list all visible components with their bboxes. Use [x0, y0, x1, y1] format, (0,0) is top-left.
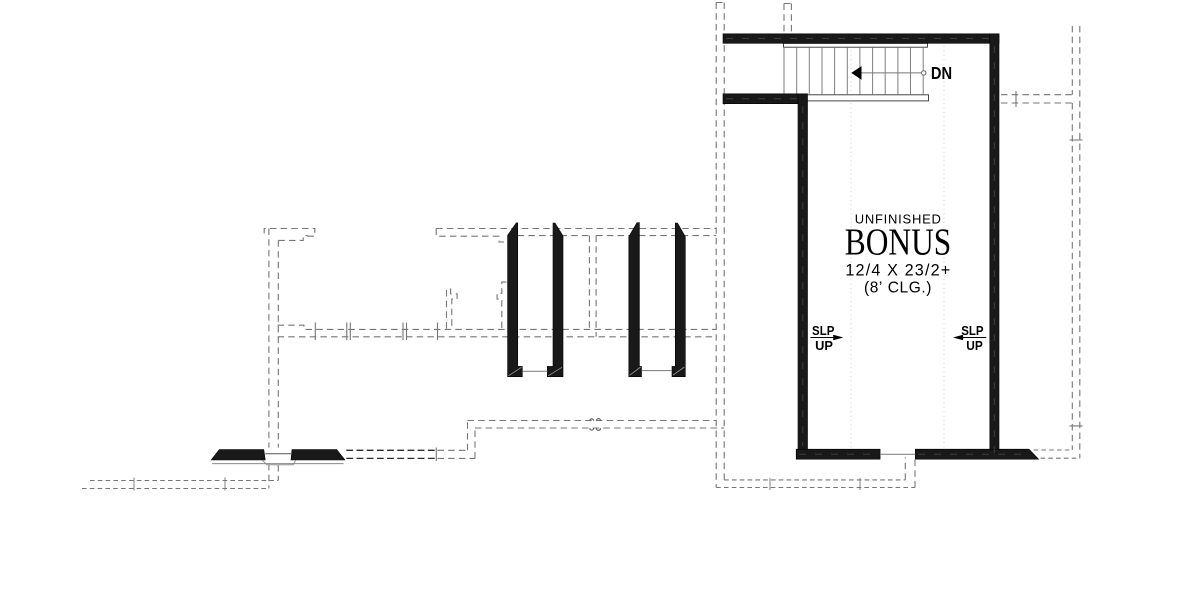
svg-text:SLP: SLP [961, 323, 984, 338]
svg-text:(8’ CLG.): (8’ CLG.) [864, 279, 931, 296]
svg-text:SLP: SLP [812, 323, 835, 338]
svg-text:DN: DN [931, 63, 952, 83]
svg-text:UP: UP [815, 338, 833, 353]
svg-text:UP: UP [966, 338, 983, 353]
svg-text:12/4 X 23/2+: 12/4 X 23/2+ [845, 262, 950, 280]
svg-text:BONUS: BONUS [845, 222, 952, 264]
